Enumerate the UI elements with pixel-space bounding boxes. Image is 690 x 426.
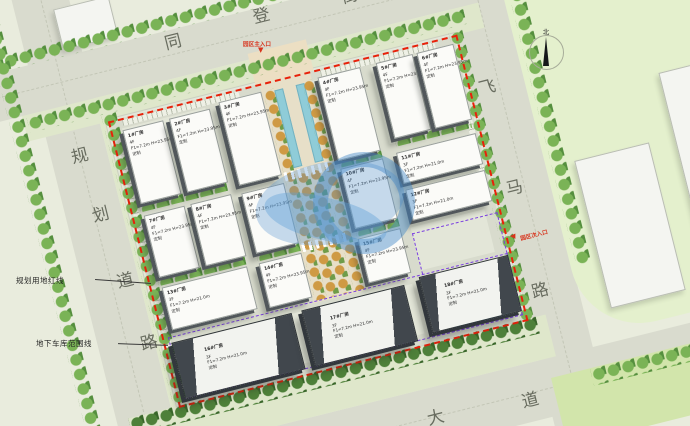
street-name-char-飞马路: 飞 <box>476 71 499 99</box>
rotated-map-world: 1#厂房4FF1=7.2m H=23.95m定制2#厂房4FF1=7.2m H=… <box>0 0 690 426</box>
street-names-layer: 同登街规划道路飞马路大道 <box>0 0 690 426</box>
street-name-char-同登街: 同 <box>161 26 184 54</box>
street-name-char-同登街: 街 <box>337 0 360 8</box>
red-line-annotation: 规划用地红线 <box>16 275 64 286</box>
secondary-entrance-arrow-icon: ◀ <box>510 233 515 240</box>
compass-needle-icon <box>543 37 549 66</box>
site-plan-canvas: 1#厂房4FF1=7.2m H=23.95m定制2#厂房4FF1=7.2m H=… <box>0 0 690 426</box>
street-name-char-飞马路: 马 <box>503 172 526 200</box>
street-name-char-规划道路: 规 <box>68 140 91 168</box>
main-entrance-label: 园区主入口 <box>243 40 271 48</box>
main-entrance-arrow-icon: ▼ <box>258 47 263 54</box>
street-name-char-规划道路: 道 <box>114 265 137 293</box>
street-name-char-大道: 道 <box>519 384 542 412</box>
street-name-char-同登街: 登 <box>250 0 273 28</box>
north-compass: 北 <box>527 26 565 76</box>
street-name-char-规划道路: 路 <box>137 327 160 355</box>
garage-line-annotation: 地下车库范围线 <box>36 338 92 349</box>
street-name-char-规划道路: 划 <box>89 199 112 227</box>
street-name-char-大道: 大 <box>424 402 447 426</box>
street-name-char-飞马路: 路 <box>528 274 551 302</box>
